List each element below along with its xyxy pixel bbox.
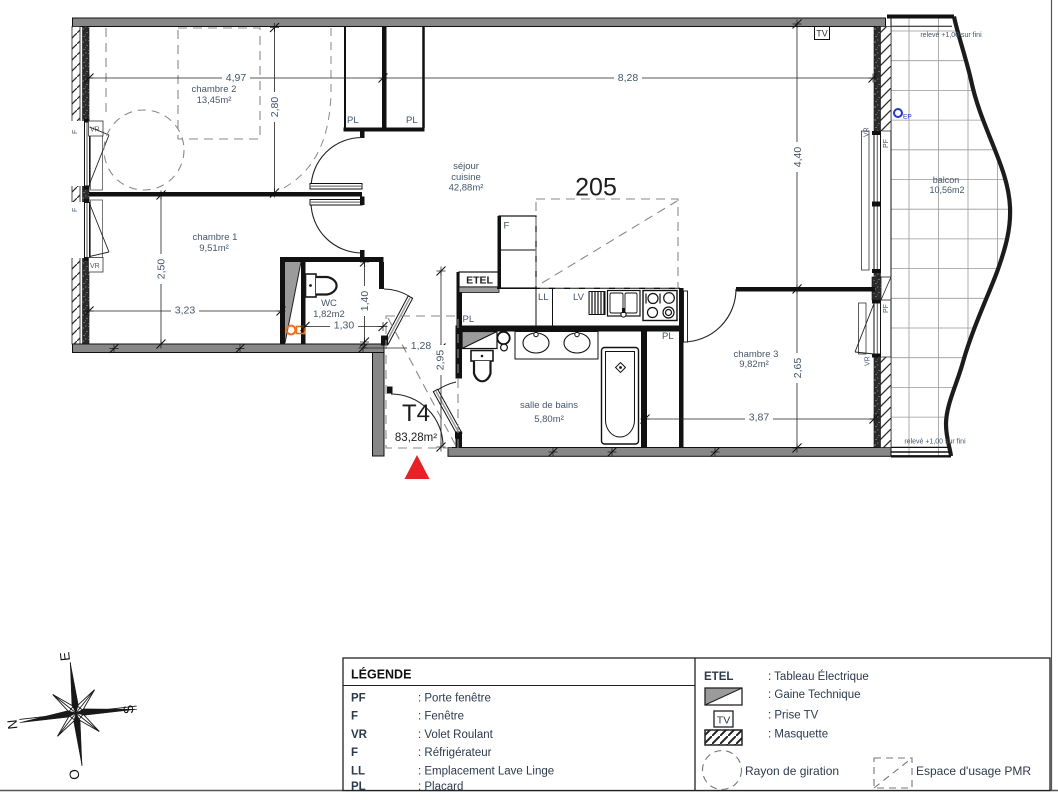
svg-text:: Gaine Technique: : Gaine Technique [768, 689, 861, 701]
svg-text:3,23: 3,23 [175, 305, 196, 317]
svg-text:10,56m2: 10,56m2 [929, 185, 964, 195]
svg-text:LL: LL [351, 766, 365, 778]
svg-text:8,28: 8,28 [618, 72, 639, 84]
svg-text:VR: VR [90, 263, 100, 270]
svg-text:: Porte fenêtre: : Porte fenêtre [418, 693, 491, 705]
svg-text:13,45m²: 13,45m² [197, 95, 232, 106]
svg-text:relevé +1,00 sur fini: relevé +1,00 sur fini [920, 32, 982, 39]
svg-text:chambre 2: chambre 2 [192, 84, 237, 95]
svg-text:WC: WC [321, 298, 337, 309]
svg-text:2,65: 2,65 [792, 358, 804, 379]
svg-text:2,50: 2,50 [156, 259, 168, 280]
svg-text:: Placard: : Placard [418, 781, 463, 793]
svg-text:42,88m²: 42,88m² [449, 183, 484, 194]
svg-text:O: O [67, 768, 83, 780]
svg-text:PL: PL [662, 331, 674, 342]
svg-text:: Masquette: : Masquette [768, 729, 828, 741]
svg-text:: Réfrigérateur: : Réfrigérateur [418, 747, 492, 759]
svg-text:F: F [351, 711, 358, 723]
svg-text:1,82m2: 1,82m2 [313, 309, 345, 320]
svg-text:PL: PL [347, 115, 359, 126]
svg-text:F: F [72, 208, 79, 212]
svg-text:Espace d'usage PMR: Espace d'usage PMR [916, 764, 1031, 778]
svg-text:T4: T4 [402, 400, 430, 427]
svg-text:TV: TV [717, 715, 730, 727]
svg-text:TV: TV [816, 29, 828, 39]
svg-text:LÉGENDE: LÉGENDE [351, 667, 411, 682]
svg-text:E: E [57, 651, 73, 662]
svg-text:PL: PL [351, 781, 366, 793]
svg-text:1,40: 1,40 [359, 291, 371, 312]
svg-text:: Emplacement Lave Linge: : Emplacement Lave Linge [418, 766, 554, 778]
svg-text:9,82m²: 9,82m² [739, 359, 769, 370]
svg-text:relevé +1,00 sur fini: relevé +1,00 sur fini [904, 439, 966, 446]
svg-text:salle de bains: salle de bains [520, 400, 578, 411]
svg-text:1,28: 1,28 [411, 340, 432, 352]
svg-text:N: N [5, 719, 21, 730]
svg-text:PF: PF [351, 693, 366, 705]
svg-text:chambre 1: chambre 1 [193, 232, 238, 243]
svg-text:F: F [504, 221, 510, 232]
svg-text:4,97: 4,97 [226, 72, 247, 84]
svg-text:LV: LV [573, 292, 585, 303]
svg-text:VR: VR [864, 127, 871, 137]
svg-text:PF: PF [883, 304, 890, 313]
svg-text:ETEL: ETEL [704, 671, 733, 683]
svg-text:balcon: balcon [933, 175, 960, 185]
svg-text:S: S [121, 704, 137, 715]
svg-text:ETEL: ETEL [466, 275, 493, 287]
svg-text:F: F [351, 747, 358, 759]
svg-text:LL: LL [538, 292, 549, 303]
svg-text:séjour: séjour [453, 161, 479, 172]
svg-text:: Volet Roulant: : Volet Roulant [418, 729, 494, 741]
svg-text:Rayon de giration: Rayon de giration [745, 764, 839, 778]
svg-text:: Prise TV: : Prise TV [768, 710, 819, 722]
svg-text:205: 205 [575, 174, 617, 202]
svg-text:83,28m²: 83,28m² [395, 432, 437, 444]
svg-text:PL: PL [463, 314, 475, 325]
svg-text:VR: VR [865, 356, 872, 366]
svg-text:F: F [72, 130, 79, 134]
svg-text:1,30: 1,30 [334, 320, 355, 332]
svg-text:VR: VR [351, 729, 368, 741]
svg-text:: Fenêtre: : Fenêtre [418, 711, 464, 723]
svg-text:2,80: 2,80 [269, 97, 281, 118]
svg-text:4,40: 4,40 [792, 147, 804, 168]
svg-text:9,51m²: 9,51m² [199, 243, 229, 254]
svg-text:cuisine: cuisine [451, 172, 481, 183]
svg-text:PF: PF [883, 139, 890, 148]
svg-text:3,87: 3,87 [749, 412, 770, 424]
svg-text:5,80m²: 5,80m² [534, 414, 564, 425]
svg-text:2,95: 2,95 [435, 350, 447, 371]
svg-text:: Tableau Électrique: : Tableau Électrique [768, 670, 869, 683]
svg-text:PL: PL [406, 115, 418, 126]
svg-text:EP: EP [903, 114, 912, 121]
